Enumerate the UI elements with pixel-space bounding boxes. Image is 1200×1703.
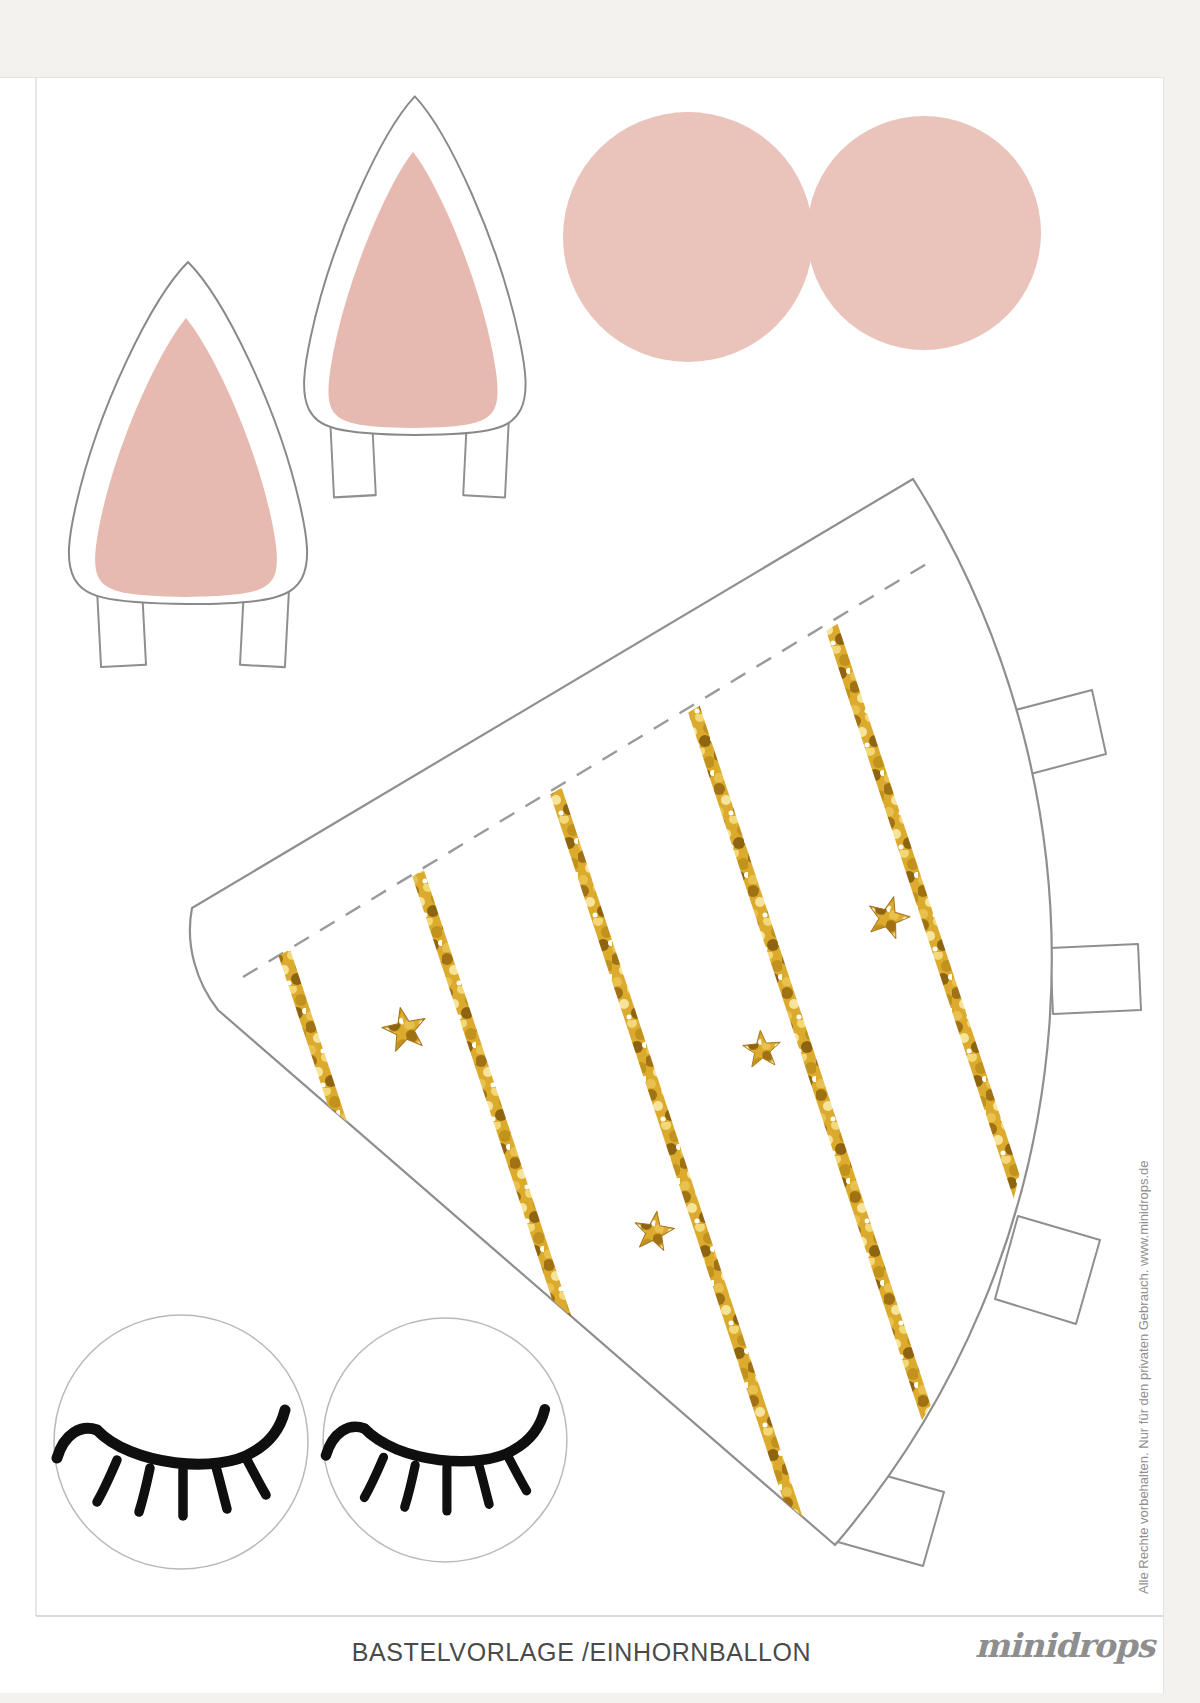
sleepy-eye-left bbox=[54, 1315, 308, 1569]
sleepy-eye-right bbox=[323, 1318, 567, 1562]
cone-tab-3 bbox=[995, 1216, 1100, 1324]
craft-template-sheet: BASTELVORLAGE /EINHORNBALLON minidrops A… bbox=[0, 0, 1200, 1703]
cone-tab-2 bbox=[1050, 944, 1141, 1014]
unicorn-ear-right bbox=[304, 96, 526, 497]
brand-logo: minidrops bbox=[975, 1626, 1154, 1665]
template-artwork bbox=[0, 0, 1200, 1703]
pink-circle-left bbox=[563, 112, 813, 362]
pink-circle-right bbox=[807, 116, 1041, 350]
copyright-notice-vertical: Alle Rechte vorbehalten. Nur für den pri… bbox=[1136, 1134, 1151, 1594]
unicorn-ear-left bbox=[69, 262, 307, 667]
